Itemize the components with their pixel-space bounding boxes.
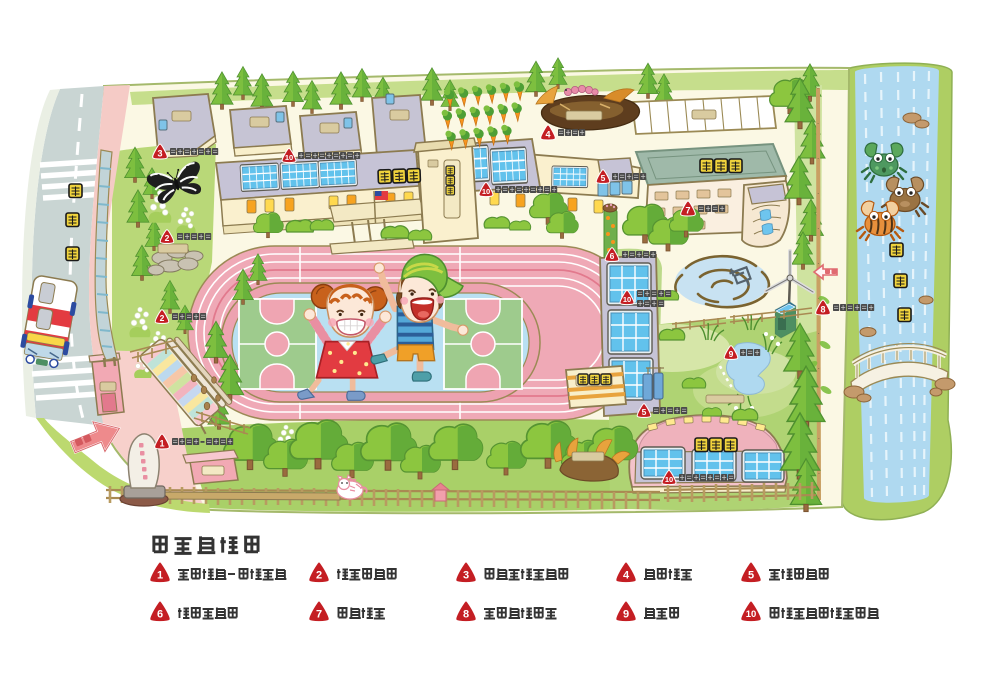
svg-text:1: 1 bbox=[159, 439, 164, 449]
svg-text:2: 2 bbox=[160, 313, 165, 323]
svg-text:5: 5 bbox=[642, 407, 647, 417]
svg-text:2: 2 bbox=[316, 570, 322, 582]
svg-text:10: 10 bbox=[623, 295, 631, 304]
svg-text:2: 2 bbox=[165, 233, 170, 243]
svg-text:10: 10 bbox=[746, 609, 757, 620]
svg-text:4: 4 bbox=[545, 130, 550, 140]
svg-text:3: 3 bbox=[463, 570, 469, 582]
svg-text:1: 1 bbox=[157, 570, 163, 582]
svg-text:10: 10 bbox=[482, 187, 490, 196]
svg-text:6: 6 bbox=[610, 251, 615, 261]
svg-text:9: 9 bbox=[623, 609, 629, 621]
svg-text:8: 8 bbox=[820, 305, 825, 315]
svg-text:7: 7 bbox=[685, 206, 690, 216]
svg-text:8: 8 bbox=[463, 609, 469, 621]
svg-text:6: 6 bbox=[157, 609, 163, 621]
svg-text:4: 4 bbox=[623, 570, 630, 582]
svg-text:10: 10 bbox=[665, 475, 673, 484]
svg-text:5: 5 bbox=[748, 570, 754, 582]
svg-text:7: 7 bbox=[316, 609, 322, 621]
svg-text:3: 3 bbox=[157, 149, 162, 159]
svg-text:9: 9 bbox=[729, 349, 734, 359]
svg-text:10: 10 bbox=[285, 153, 293, 162]
svg-text:5: 5 bbox=[601, 173, 606, 183]
